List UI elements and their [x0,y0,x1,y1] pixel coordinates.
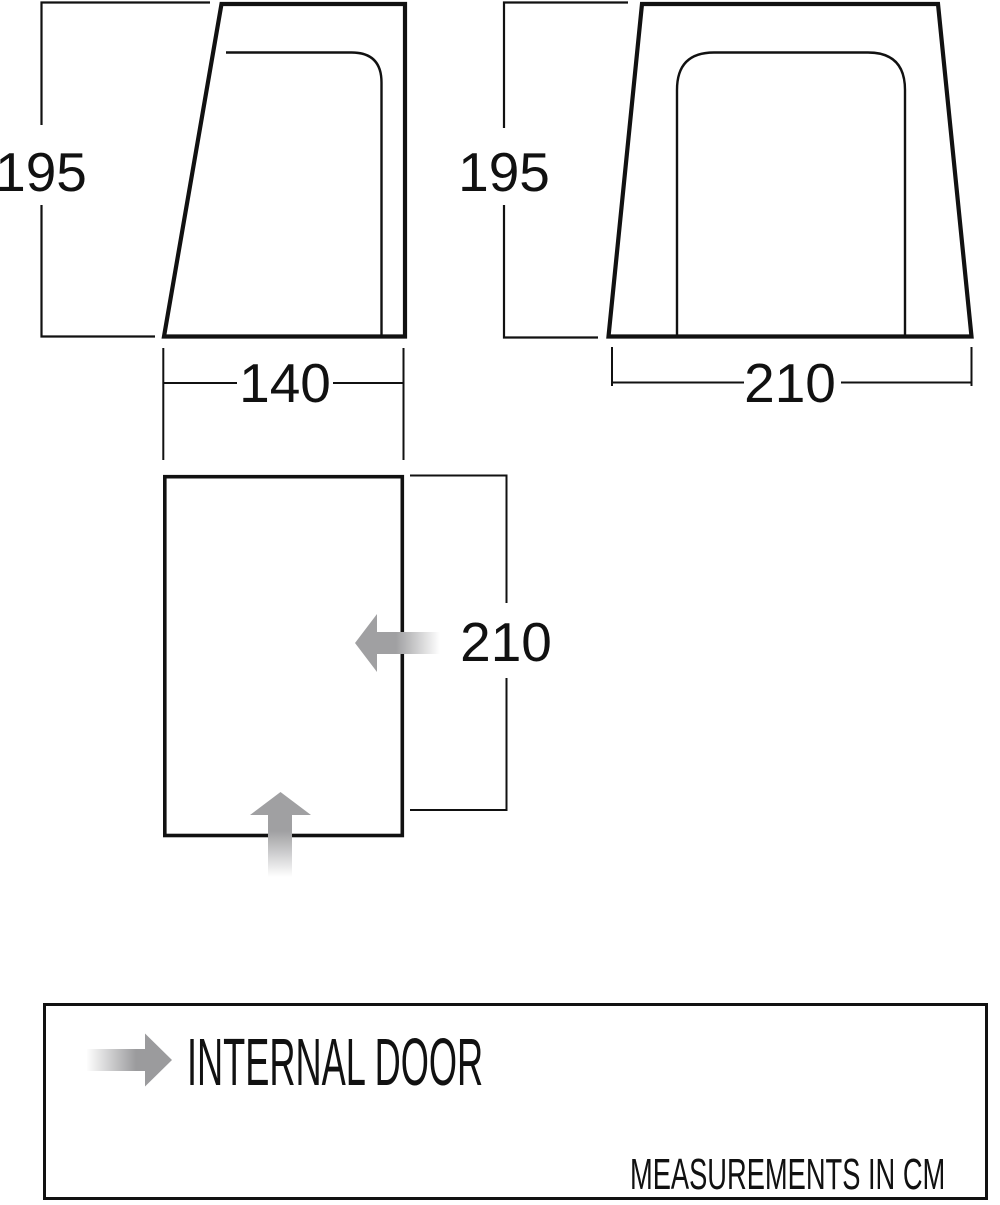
floor-plan-depth-label: 210 [436,615,576,670]
front-view-height-label: 195 [434,145,574,200]
diagram-canvas: 195 140 195 210 210 INTERNAL DOOR MEASUR… [0,0,1000,1205]
side-view-door-outline [226,53,382,337]
legend-measurements-note: MEASUREMENTS IN CM [630,1153,945,1197]
legend-internal-door-arrow-icon [87,1034,172,1087]
legend-internal-door-label: INTERNAL DOOR [187,1029,483,1096]
front-view-outline [609,4,972,337]
side-view-outline [164,4,405,337]
side-view-height-label: 195 [0,145,111,200]
front-view-width-label: 210 [720,356,860,411]
side-view-width-label: 140 [215,356,355,411]
front-view-door-outline [677,53,905,338]
internal-door-arrow-left-icon [355,614,440,672]
